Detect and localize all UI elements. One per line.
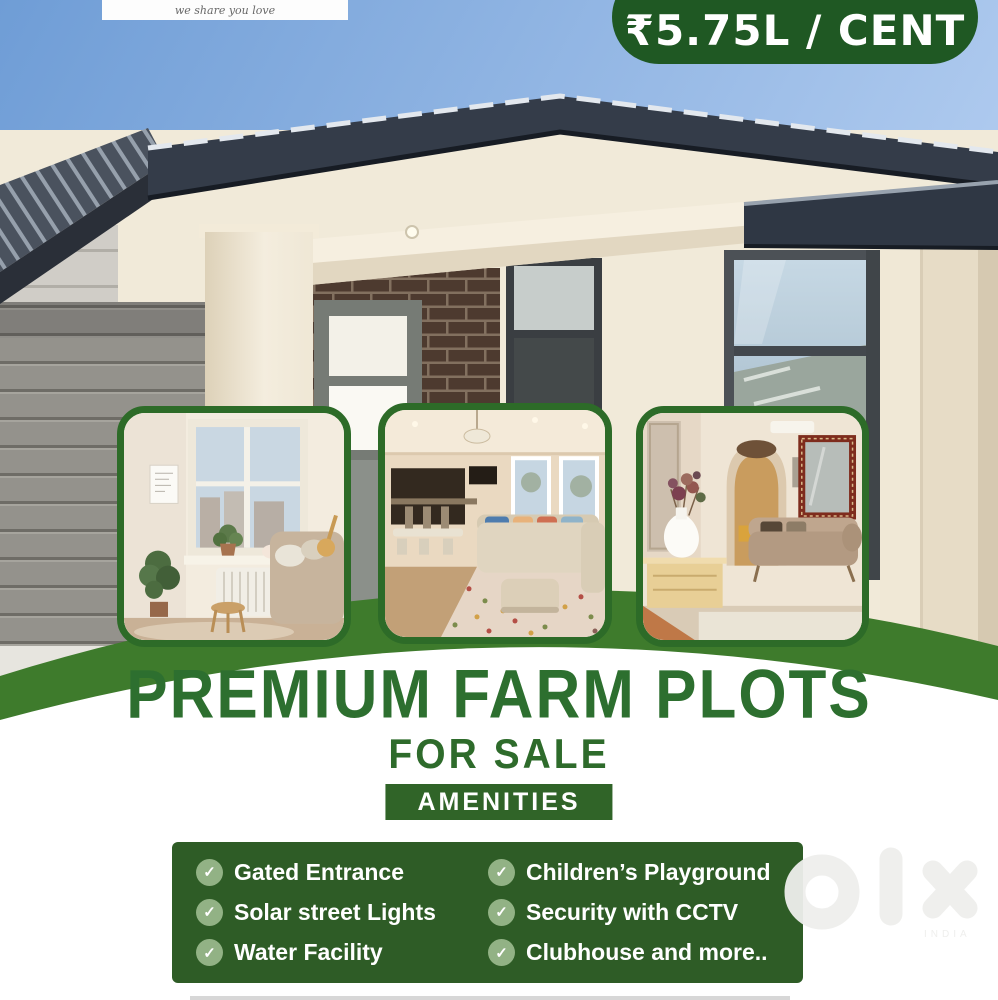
- check-icon: ✓: [488, 939, 515, 966]
- amenity-item: ✓ Clubhouse and more..: [488, 933, 799, 973]
- recessed-light: [406, 226, 418, 238]
- price-badge: ₹5.75L / CENT: [612, 0, 978, 64]
- amenity-item: ✓ Water Facility: [196, 933, 488, 973]
- check-icon: ✓: [196, 859, 223, 886]
- amenity-label: Security with CCTV: [526, 899, 738, 926]
- page-title: PREMIUM FARM PLOTS: [0, 656, 998, 734]
- brand-ribbon: we share you love: [102, 0, 348, 20]
- classic-living-room-photo: [643, 413, 862, 640]
- for-sale-subtitle: FOR SALE: [0, 732, 998, 779]
- amenities-heading: AMENITIES: [385, 784, 612, 820]
- amenity-item: ✓ Gated Entrance: [196, 852, 488, 892]
- amenities-panel: ✓ Gated Entrance ✓ Solar street Lights ✓…: [172, 842, 803, 983]
- watermark-country-label: INDIA: [924, 929, 971, 940]
- check-icon: ✓: [488, 899, 515, 926]
- corner-pier: [880, 242, 998, 672]
- amenity-item: ✓ Children’s Playground: [488, 852, 799, 892]
- farm-plots-ad-poster: PREMIUM FARM PLOTS FOR SALE AMENITIES ✓ …: [0, 0, 998, 1000]
- amenity-item: ✓ Security with CCTV: [488, 892, 799, 932]
- gallery-card-2: [378, 403, 612, 644]
- amenity-label: Clubhouse and more..: [526, 939, 768, 966]
- gallery-card-3: [636, 406, 869, 647]
- porch-window: [506, 258, 602, 414]
- check-icon: ✓: [196, 899, 223, 926]
- amenity-label: Gated Entrance: [234, 859, 404, 886]
- amenity-item: ✓ Solar street Lights: [196, 892, 488, 932]
- check-icon: ✓: [196, 939, 223, 966]
- gallery-card-1: [117, 406, 351, 647]
- amenity-label: Water Facility: [234, 939, 383, 966]
- olx-o-icon: [795, 865, 849, 919]
- olx-x-icon: [933, 871, 967, 908]
- amenity-label: Solar street Lights: [234, 899, 436, 926]
- amenity-label: Children’s Playground: [526, 859, 771, 886]
- cozy-living-room-photo: [124, 413, 344, 640]
- olx-watermark-logo: INDIA: [778, 840, 998, 944]
- bottom-divider: [190, 996, 790, 1000]
- open-plan-living-room-photo: [385, 410, 605, 637]
- check-icon: ✓: [488, 859, 515, 886]
